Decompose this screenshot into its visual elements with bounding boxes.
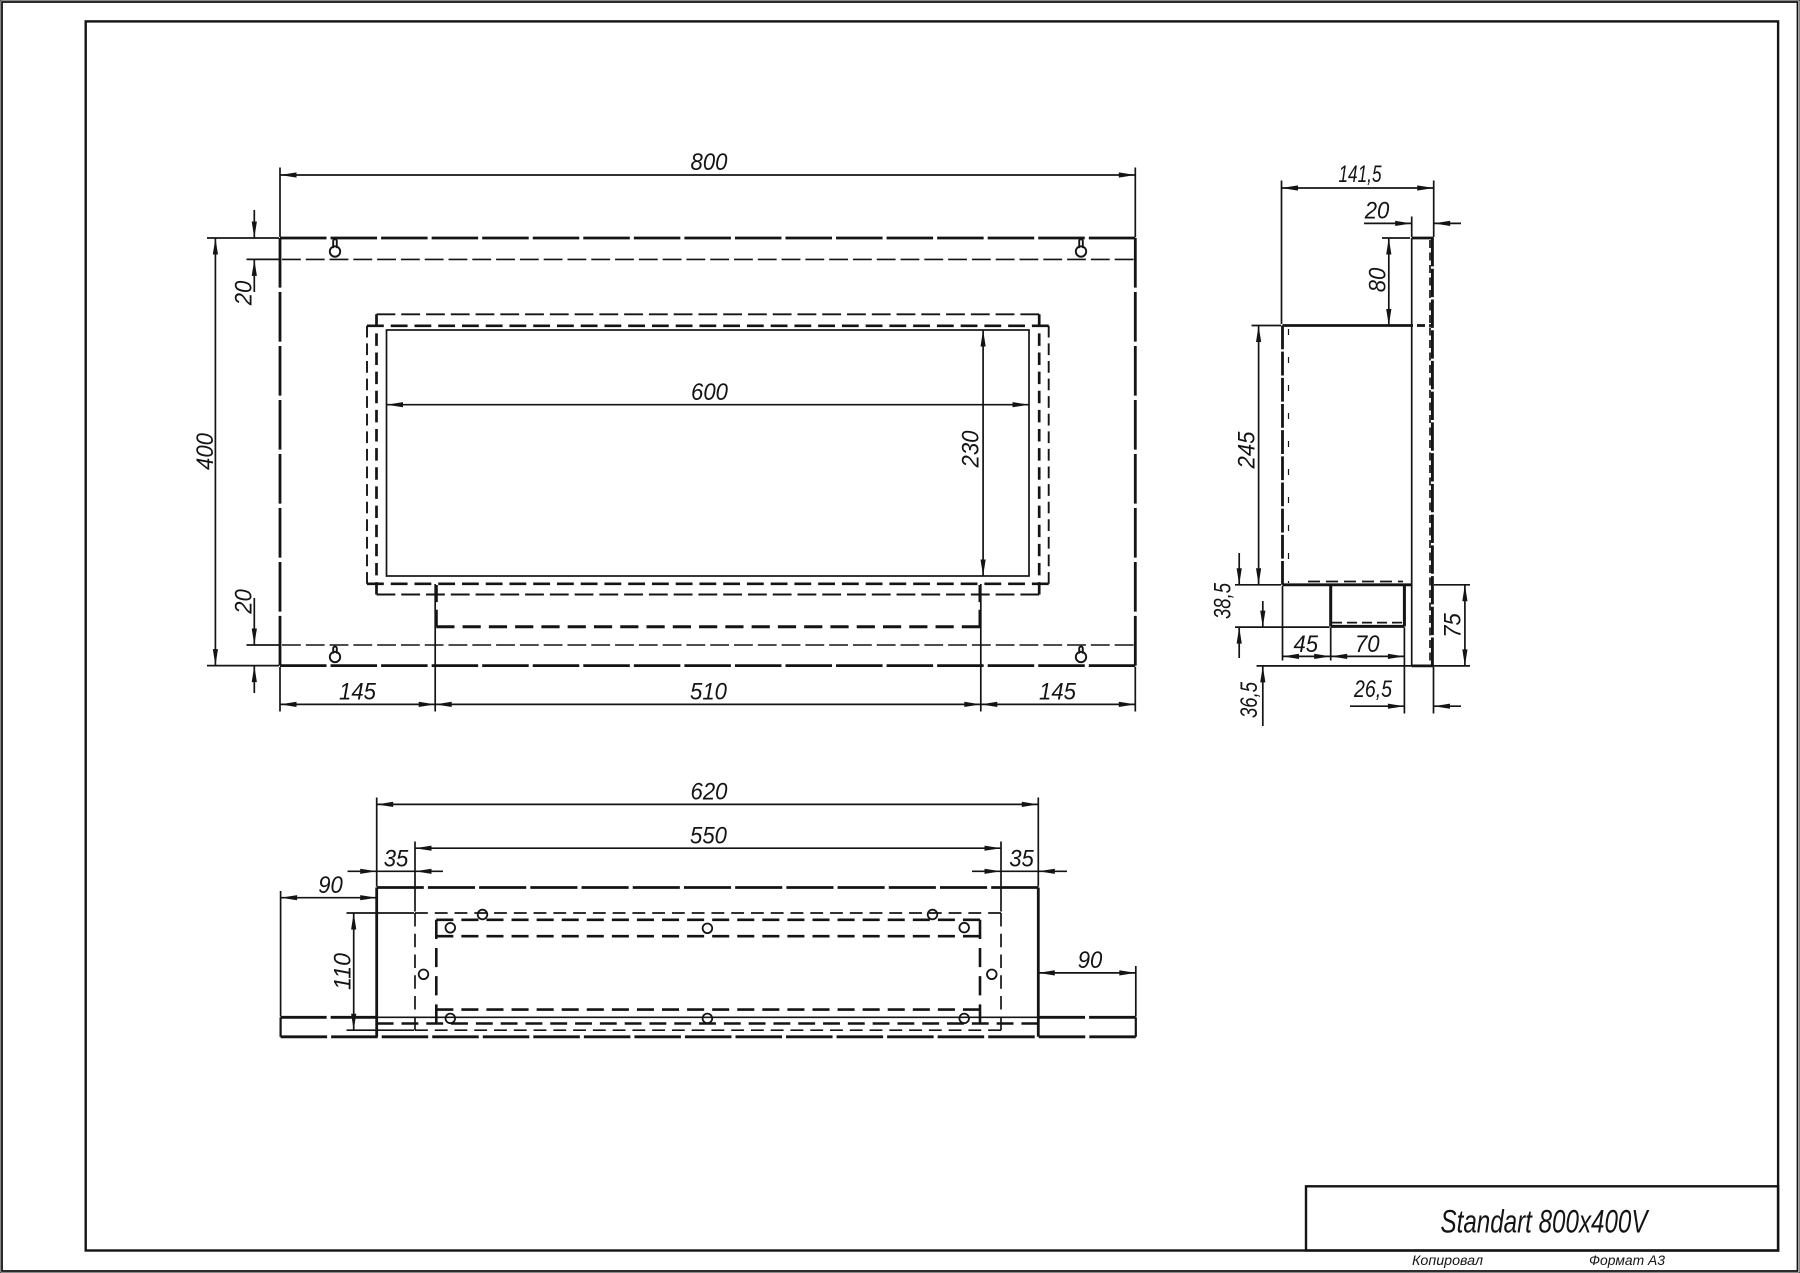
- svg-text:35: 35: [1009, 846, 1034, 873]
- svg-text:Формат А3: Формат А3: [1589, 1253, 1665, 1268]
- svg-text:38,5: 38,5: [1210, 583, 1237, 619]
- svg-text:20: 20: [230, 280, 257, 306]
- svg-text:620: 620: [691, 779, 728, 806]
- svg-text:145: 145: [339, 679, 376, 706]
- svg-text:Копировал: Копировал: [1412, 1253, 1483, 1268]
- svg-text:90: 90: [318, 872, 343, 899]
- svg-text:20: 20: [1364, 198, 1390, 225]
- svg-text:510: 510: [690, 679, 727, 706]
- svg-text:550: 550: [690, 823, 727, 850]
- svg-text:145: 145: [1039, 679, 1076, 706]
- svg-text:141,5: 141,5: [1339, 161, 1382, 188]
- svg-text:800: 800: [691, 149, 728, 176]
- svg-text:45: 45: [1294, 631, 1319, 658]
- svg-text:75: 75: [1439, 613, 1466, 638]
- svg-text:90: 90: [1078, 947, 1103, 974]
- svg-text:230: 230: [957, 430, 984, 468]
- svg-text:35: 35: [384, 846, 409, 873]
- svg-text:80: 80: [1364, 267, 1391, 292]
- svg-text:600: 600: [691, 379, 728, 406]
- svg-text:70: 70: [1355, 631, 1380, 658]
- svg-text:20: 20: [230, 589, 257, 615]
- svg-text:400: 400: [192, 433, 219, 470]
- svg-text:Standart 800x400V: Standart 800x400V: [1441, 1204, 1650, 1240]
- svg-text:26,5: 26,5: [1353, 676, 1392, 703]
- svg-text:245: 245: [1234, 431, 1261, 469]
- svg-text:110: 110: [329, 953, 356, 990]
- svg-text:36,5: 36,5: [1236, 682, 1263, 718]
